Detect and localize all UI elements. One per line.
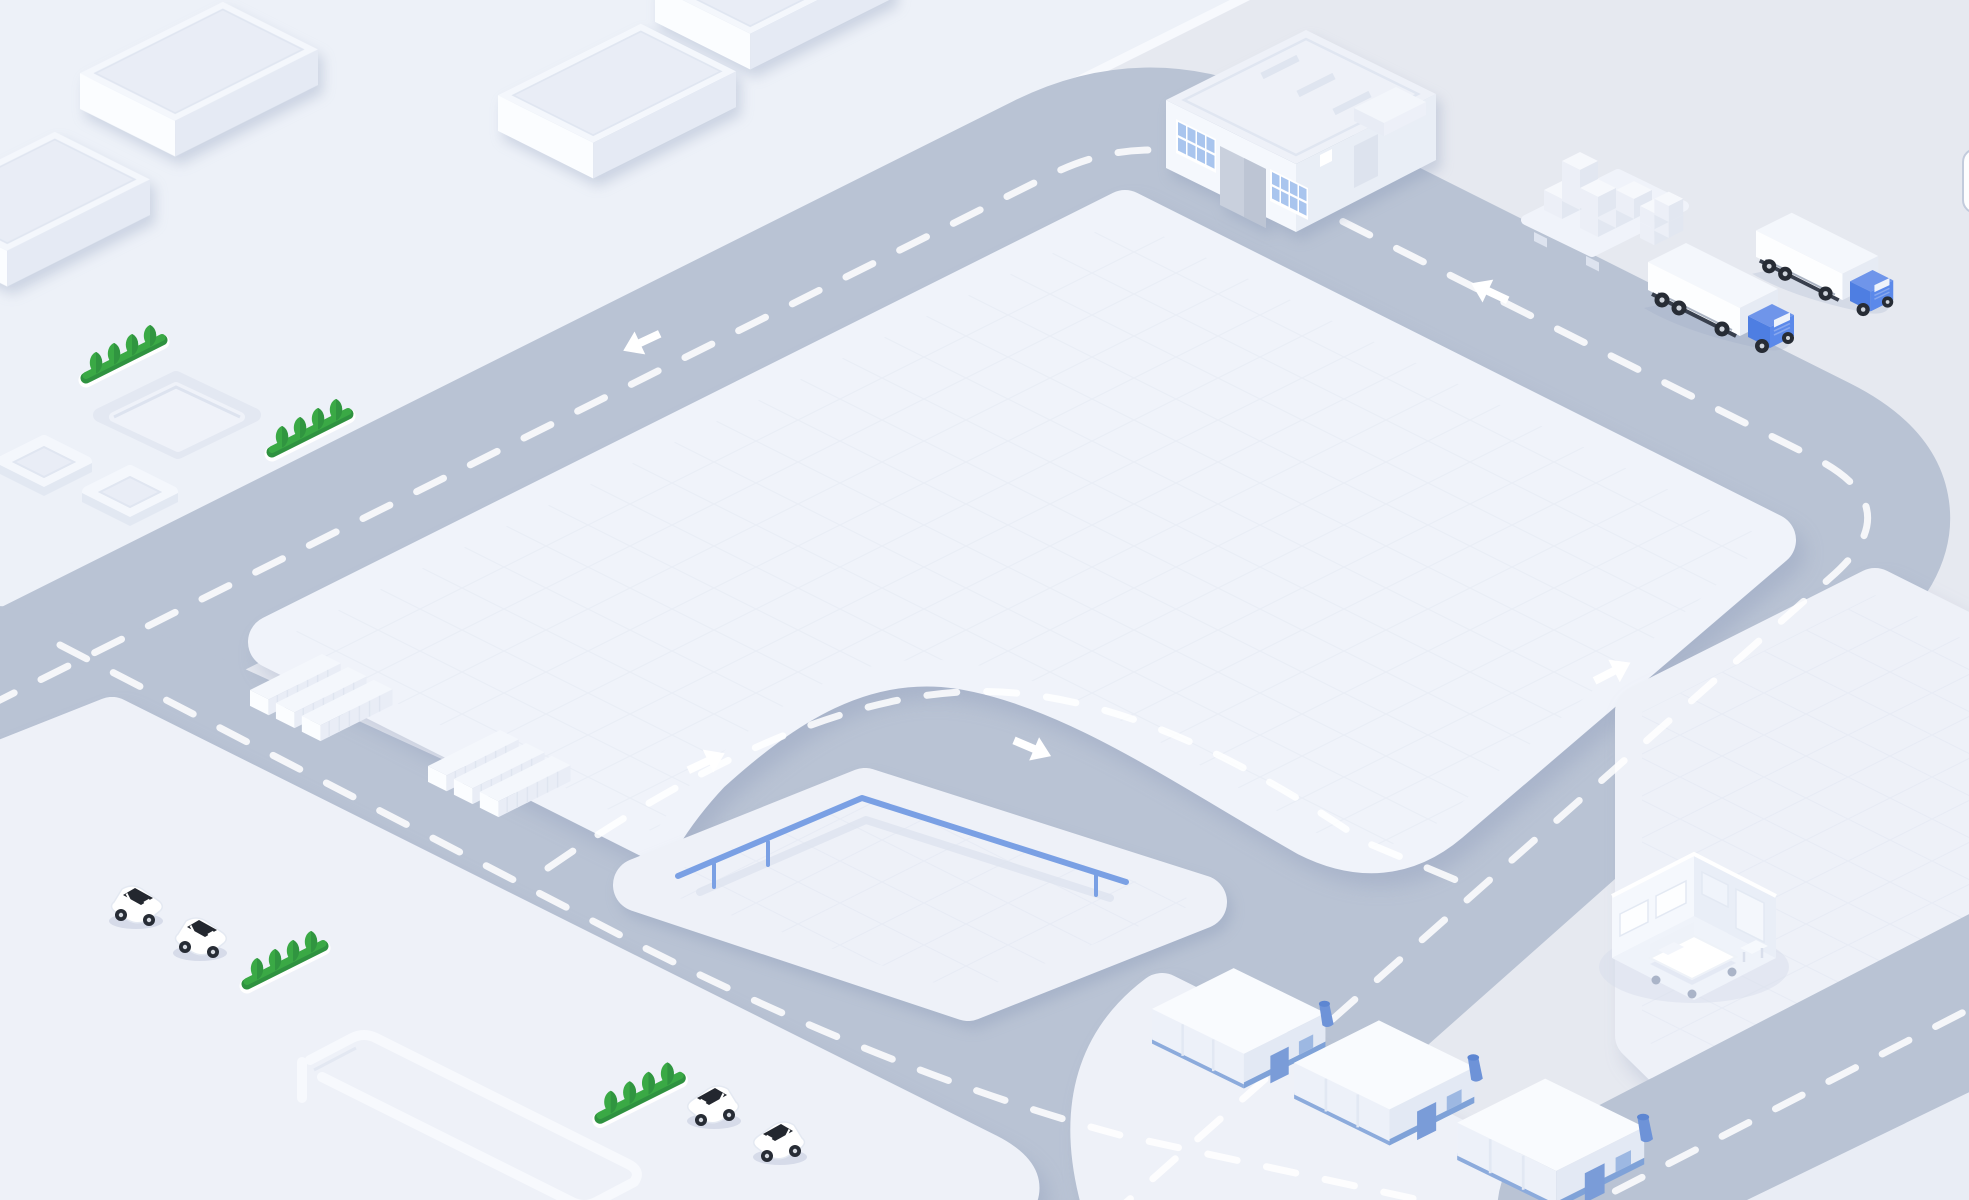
scene-canvas xyxy=(0,0,1969,1200)
isometric-campus-scene xyxy=(0,0,1969,1200)
edge-panel-button[interactable] xyxy=(1962,148,1969,214)
